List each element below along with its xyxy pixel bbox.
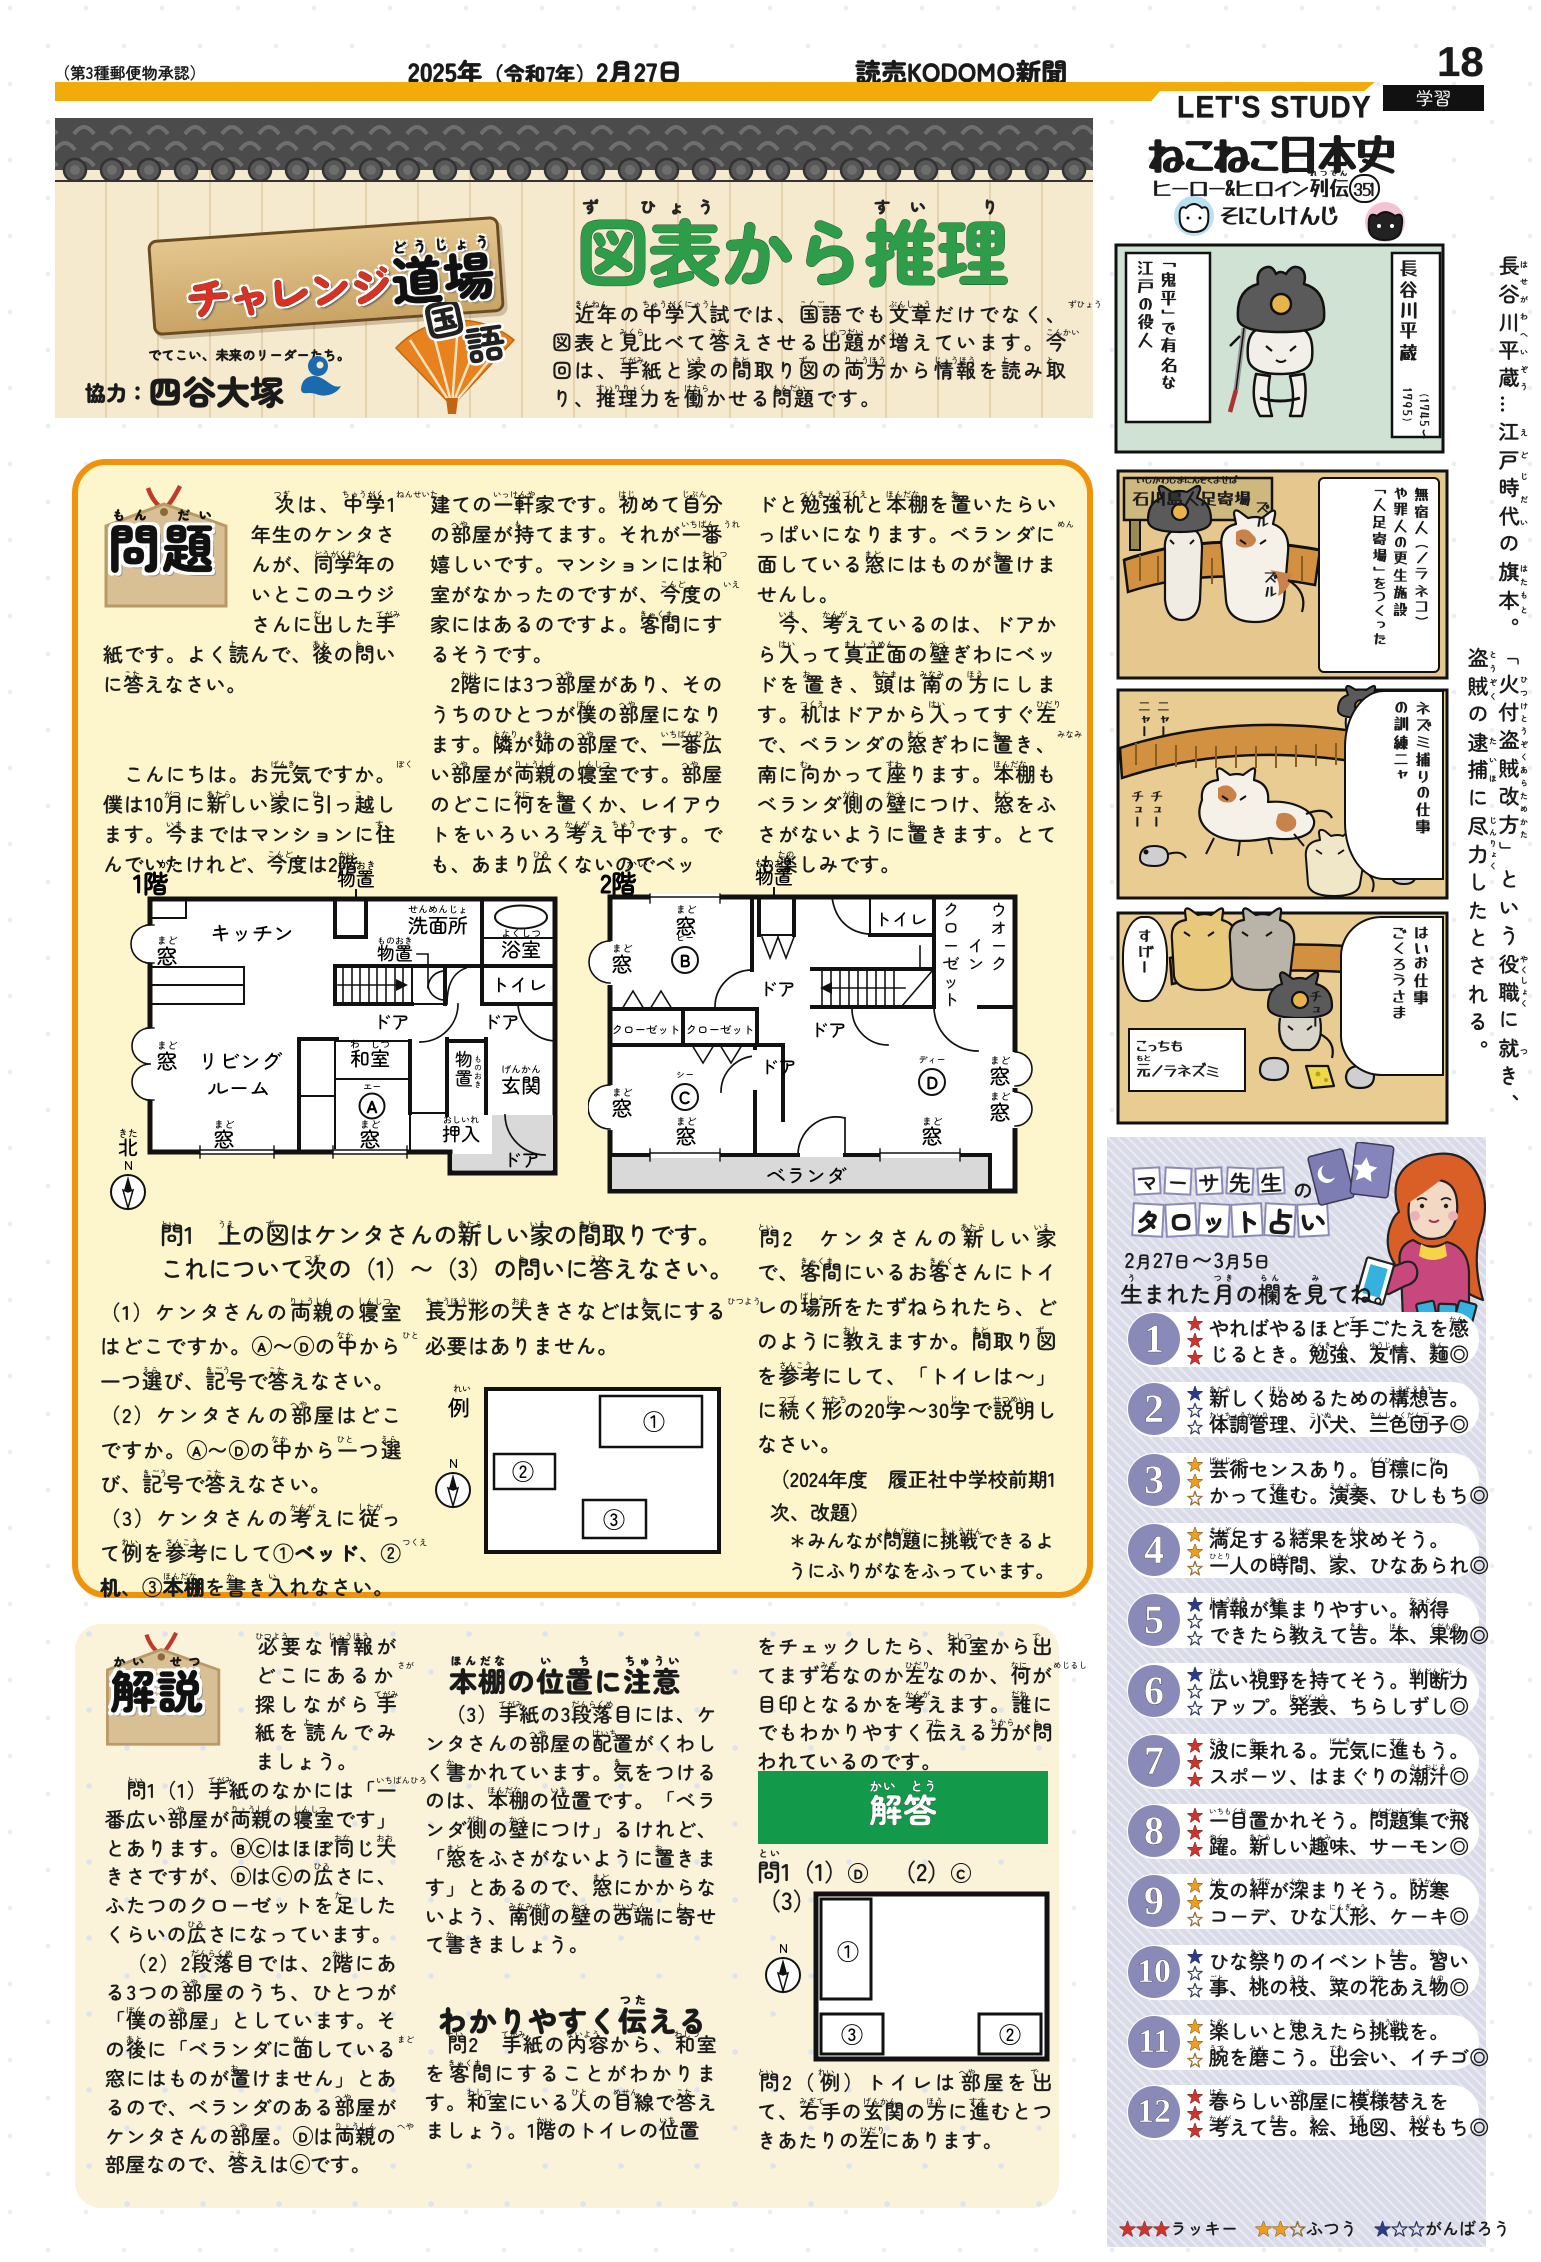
svg-text:クローゼット: クローゼット [612,1022,681,1038]
svg-text:おしいれ: おしいれ [443,1113,479,1126]
svg-text:リビング: リビング [198,1046,283,1076]
svg-text:ドア: ドア [809,1016,847,1043]
svg-text:ウオーク: ウオーク [991,896,1008,975]
svg-text:③: ③ [841,2018,863,2050]
svg-text:ものおき: ものおき [754,855,794,870]
svg-text:よくしつ: よくしつ [501,925,541,940]
svg-text:②: ② [999,2018,1021,2050]
svg-text:例: 例 [448,1391,470,1423]
svg-text:まど: まど [676,1113,696,1128]
svg-text:①: ① [643,1405,665,1437]
svg-text:まど: まど [676,901,696,916]
svg-text:ドア: ドア [502,1146,540,1173]
svg-text:D: D [926,1069,937,1094]
svg-text:①: ① [837,1935,859,1967]
svg-text:かい: かい [626,856,648,872]
svg-text:クローゼット: クローゼット [943,896,960,1011]
svg-text:まど: まど [360,1116,380,1131]
svg-text:物置: 物置 [455,1046,473,1091]
svg-text:ドア: ドア [372,1008,410,1035]
svg-text:トイレ: トイレ [874,906,928,932]
svg-text:N: N [779,1938,788,1957]
svg-text:B: B [680,947,691,972]
svg-text:語: 語 [461,310,509,373]
svg-text:ディー: ディー [918,1053,945,1066]
svg-text:③: ③ [603,1503,625,1535]
svg-text:せんめんじょ: せんめんじょ [408,901,468,916]
svg-text:まど: まど [922,1113,942,1128]
svg-text:N: N [124,1155,133,1174]
svg-text:かい: かい [158,856,180,872]
svg-text:トイレ: トイレ [490,971,547,998]
svg-text:まど: まど [612,940,632,955]
svg-text:ドア: ドア [759,1053,797,1080]
svg-text:まど: まど [214,1116,234,1131]
svg-text:きた: きた [118,1125,138,1140]
svg-text:N: N [449,1453,458,1472]
svg-text:まど: まど [990,1088,1010,1103]
svg-text:げんかん: げんかん [501,1061,541,1076]
svg-text:まど: まど [612,1084,632,1099]
svg-text:ものおき: ものおき [336,857,376,872]
svg-text:ドア: ドア [758,975,796,1002]
svg-text:れい: れい [453,1382,471,1395]
svg-text:クローゼット: クローゼット [686,1022,755,1038]
svg-text:②: ② [512,1455,534,1487]
svg-text:ものおき: ものおき [377,934,413,947]
svg-text:まど: まど [157,932,177,947]
svg-text:イン: イン [968,932,985,975]
svg-text:キッチン: キッチン [210,918,294,948]
svg-text:ルーム: ルーム [208,1073,271,1103]
svg-text:エー: エー [363,1080,381,1093]
svg-text:ドア: ドア [482,1008,520,1035]
svg-text:まど: まど [157,1037,177,1052]
svg-text:C: C [679,1084,691,1109]
svg-text:ベランダ: ベランダ [766,1160,847,1189]
svg-text:まど: まど [990,1052,1010,1067]
svg-text:ビー: ビー [676,931,694,944]
svg-text:ものおき: ものおき [474,1054,482,1091]
svg-text:A: A [366,1093,378,1118]
svg-text:わ しつ: わ しつ [350,1036,390,1051]
svg-text:シー: シー [676,1068,694,1081]
